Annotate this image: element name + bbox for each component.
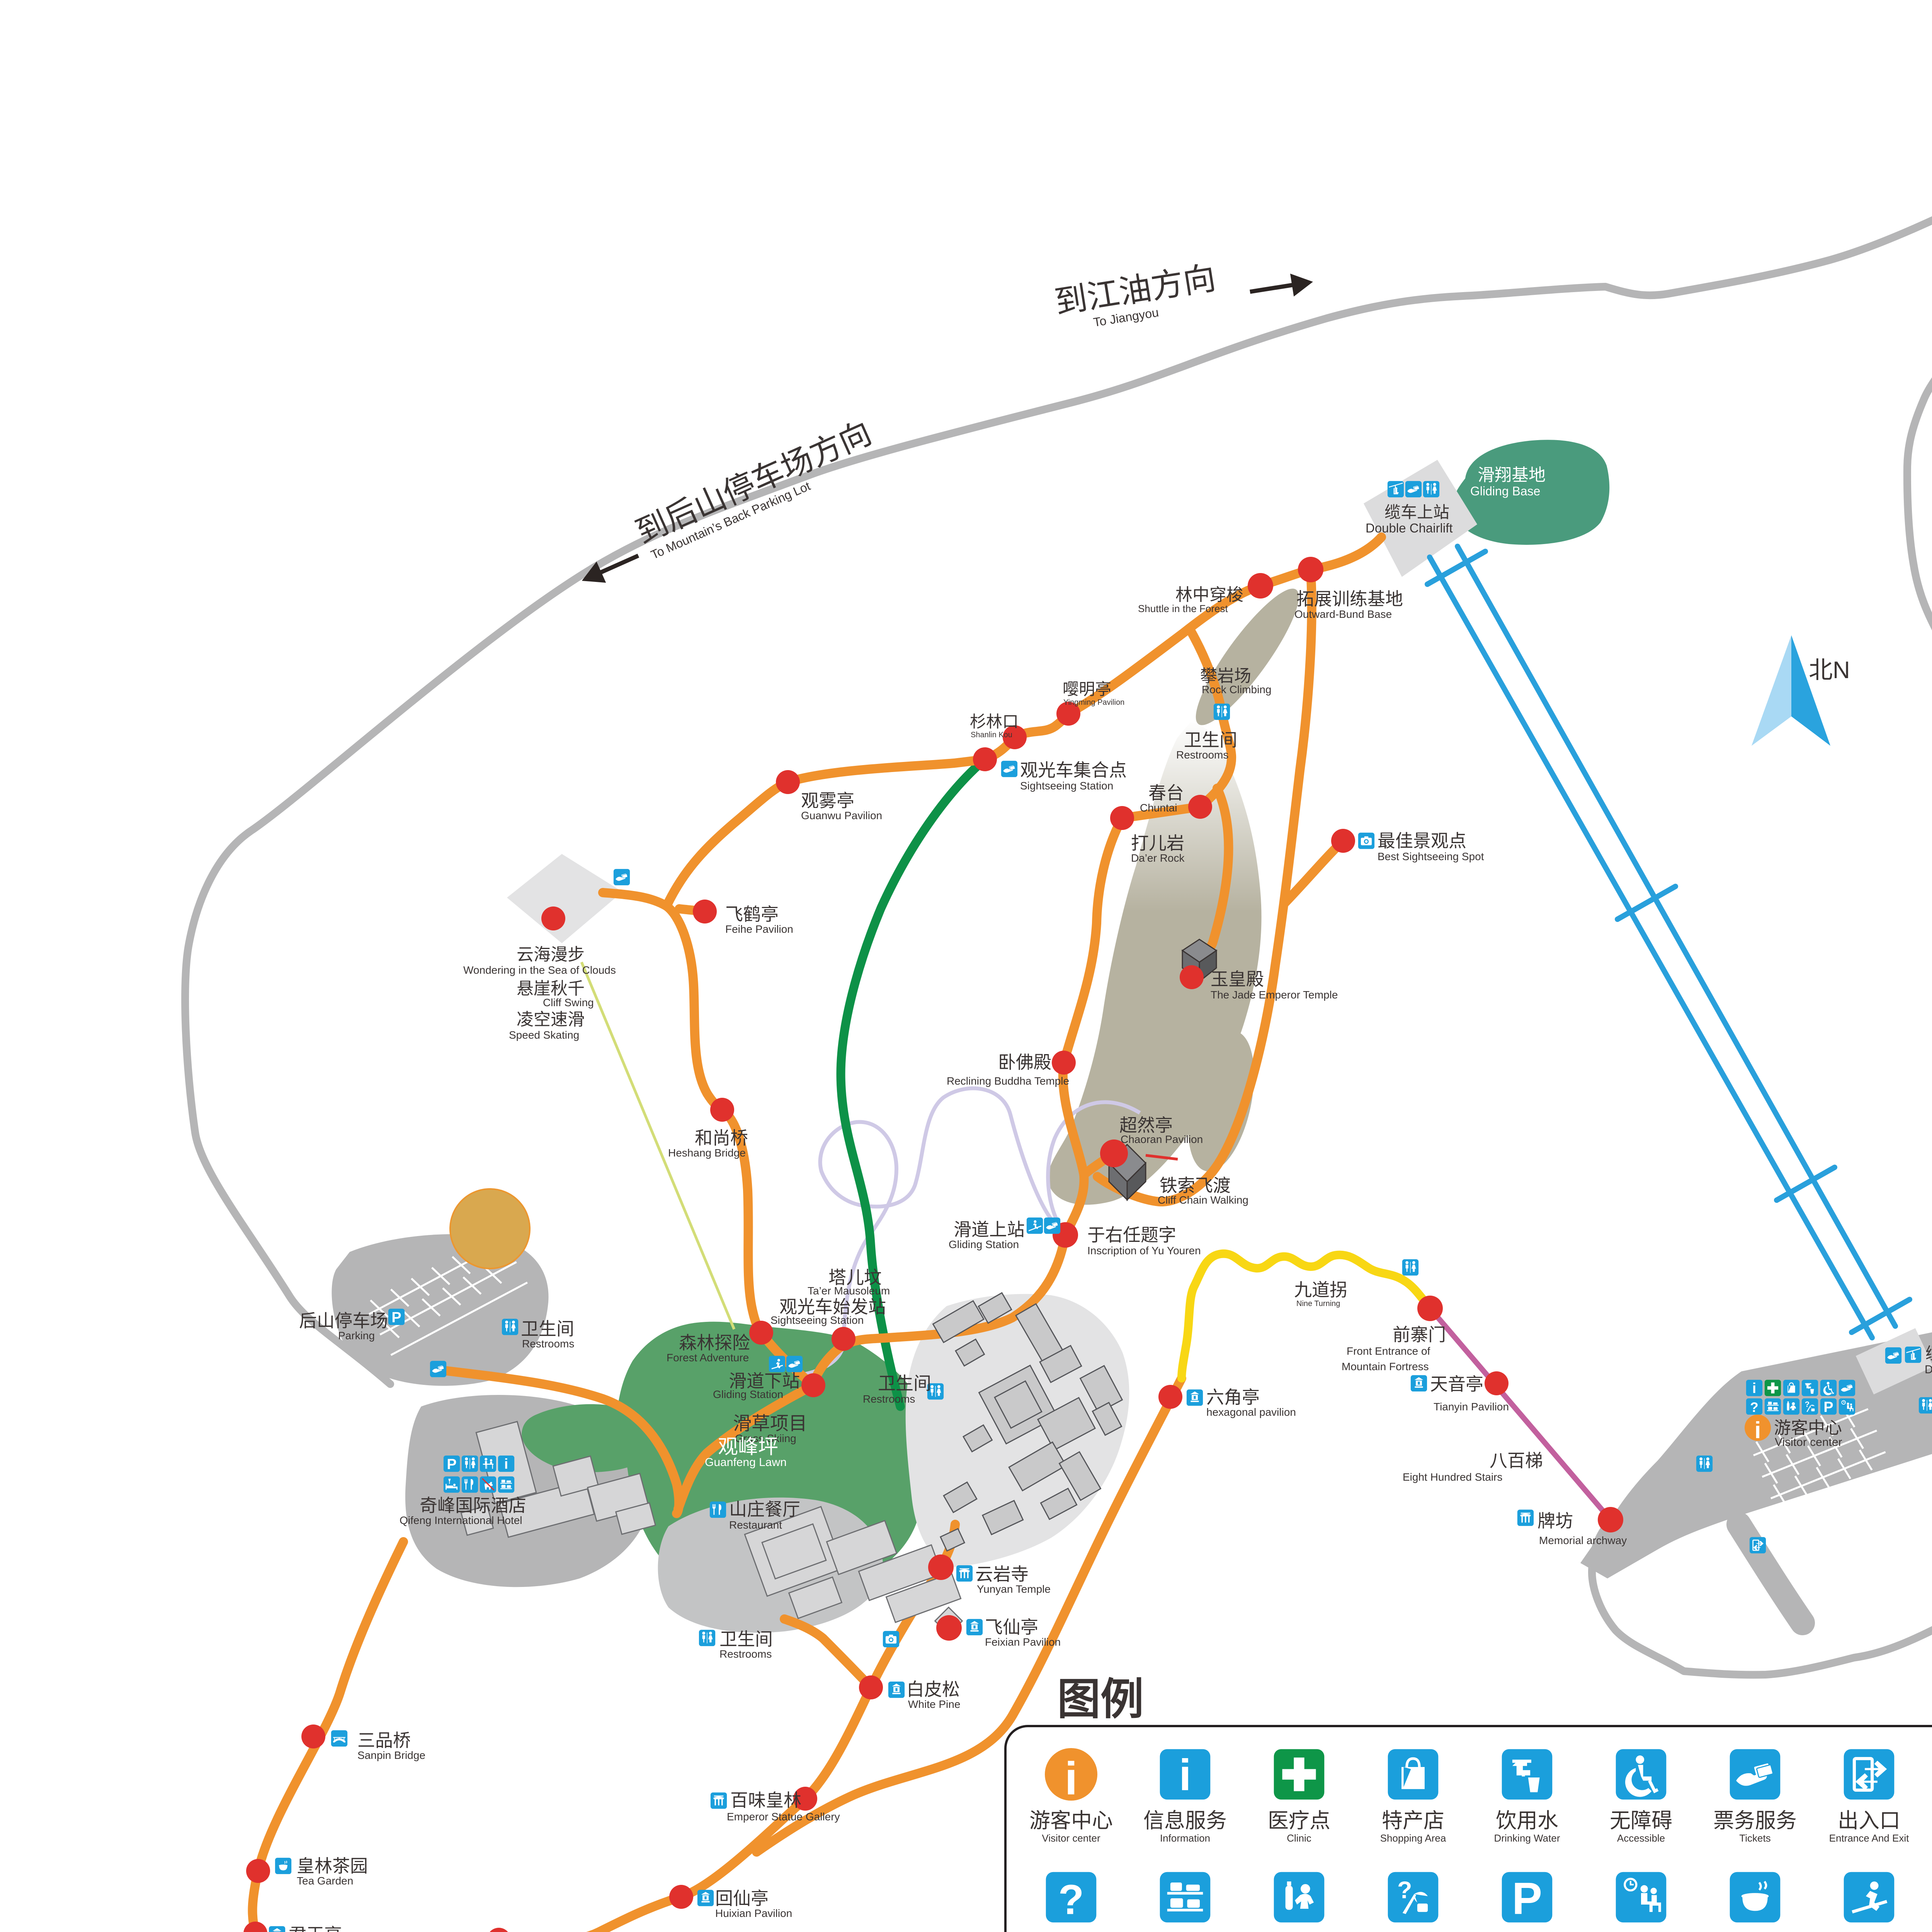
svg-text:Emperor Statue Gallery: Emperor Statue Gallery [727,1811,840,1823]
svg-text:Restrooms: Restrooms [863,1393,915,1405]
svg-text:杉林口: 杉林口 [970,713,1019,731]
svg-text:Guanfeng Lawn: Guanfeng Lawn [705,1456,787,1469]
svg-text:卫生间: 卫生间 [1184,730,1237,750]
svg-text:Yunyan Temple: Yunyan Temple [977,1583,1051,1595]
svg-text:Qifeng International Hotel: Qifeng International Hotel [400,1514,522,1526]
svg-text:Forest Adventure: Forest Adventure [667,1352,749,1364]
svg-text:Eight Hundred Stairs: Eight Hundred Stairs [1403,1471,1502,1483]
svg-text:春台: 春台 [1148,783,1184,803]
svg-text:Yingming Pavilion: Yingming Pavilion [1063,698,1124,707]
svg-text:九道拐: 九道拐 [1294,1280,1347,1300]
svg-text:天音亭: 天音亭 [1430,1374,1483,1394]
svg-text:超然亭: 超然亭 [1119,1115,1173,1135]
svg-text:前寨门: 前寨门 [1393,1325,1446,1345]
svg-text:票务服务: 票务服务 [1713,1809,1797,1832]
svg-text:卧佛殿: 卧佛殿 [998,1052,1051,1072]
svg-text:Memorial archway: Memorial archway [1539,1534,1627,1546]
svg-text:凌空速滑: 凌空速滑 [517,1010,585,1029]
svg-text:Best Sightseeing Spot: Best Sightseeing Spot [1378,850,1484,862]
svg-text:皇林茶园: 皇林茶园 [297,1856,368,1876]
svg-text:游客中心: 游客中心 [1774,1418,1842,1437]
svg-text:Shopping Area: Shopping Area [1380,1832,1446,1844]
svg-text:Visitor center: Visitor center [1042,1832,1100,1844]
svg-text:卫生间: 卫生间 [719,1629,773,1649]
svg-text:飞鹤亭: 飞鹤亭 [725,904,779,924]
svg-text:Nine Turning: Nine Turning [1296,1299,1340,1308]
svg-text:hexagonal pavilion: hexagonal pavilion [1206,1406,1296,1418]
svg-text:图例: 图例 [1057,1675,1144,1723]
svg-text:Ta’er Mausoleum: Ta’er Mausoleum [808,1285,890,1297]
svg-text:Front Entrance of: Front Entrance of [1347,1345,1430,1357]
svg-text:Gliding Base: Gliding Base [1470,484,1540,498]
svg-text:卫生间: 卫生间 [878,1373,931,1393]
svg-text:Restrooms: Restrooms [522,1338,574,1350]
svg-text:Accessible: Accessible [1617,1832,1665,1844]
svg-text:白皮松: 白皮松 [906,1679,960,1699]
svg-text:Restaurant: Restaurant [729,1519,782,1531]
svg-text:Double Chairlift: Double Chairlift [1366,521,1453,535]
svg-text:拓展训练基地: 拓展训练基地 [1296,589,1403,609]
svg-text:Gliding Station: Gliding Station [713,1388,783,1400]
svg-text:Sightseeing Station: Sightseeing Station [770,1314,864,1326]
svg-text:饮用水: 饮用水 [1496,1809,1558,1832]
svg-text:医疗点: 医疗点 [1268,1809,1330,1832]
svg-text:Information: Information [1160,1832,1210,1844]
svg-text:玉皇殿: 玉皇殿 [1211,969,1264,989]
svg-text:Sanpin Bridge: Sanpin Bridge [357,1749,425,1761]
svg-text:嘤明亭: 嘤明亭 [1063,680,1111,698]
svg-text:i: i [1755,1417,1761,1443]
svg-text:Feihe Pavilion: Feihe Pavilion [725,923,793,935]
svg-text:缆车上站: 缆车上站 [1384,503,1449,521]
svg-text:缆车下站: 缆车下站 [1925,1344,1932,1362]
svg-text:The Jade Emperor Temple: The Jade Emperor Temple [1211,989,1338,1001]
svg-text:Guanwu Pavilion: Guanwu Pavilion [801,810,882,821]
svg-text:Gliding Station: Gliding Station [949,1238,1019,1250]
svg-text:攀岩场: 攀岩场 [1200,667,1251,685]
svg-text:飞仙亭: 飞仙亭 [985,1617,1038,1637]
svg-text:森林探险: 森林探险 [679,1333,750,1353]
svg-text:Da’er Rock: Da’er Rock [1131,852,1185,864]
svg-text:特产店: 特产店 [1382,1809,1444,1832]
svg-text:林中穿梭: 林中穿梭 [1175,585,1243,604]
svg-text:Cliff Chain Walking: Cliff Chain Walking [1158,1194,1248,1206]
svg-text:Inscription of Yu Youren: Inscription of Yu Youren [1087,1245,1201,1257]
svg-text:滑道上站: 滑道上站 [954,1219,1025,1240]
svg-text:Feixian Pavilion: Feixian Pavilion [985,1636,1061,1648]
svg-text:Chuntai: Chuntai [1140,802,1177,814]
svg-text:Tianyin Pavilion: Tianyin Pavilion [1434,1401,1509,1413]
svg-text:Shuttle in the Forest: Shuttle in the Forest [1138,603,1228,614]
svg-text:Restrooms: Restrooms [719,1648,772,1660]
svg-text:北N: 北N [1809,657,1850,684]
svg-text:于右任题字: 于右任题字 [1087,1225,1176,1245]
svg-text:悬崖秋千: 悬崖秋千 [517,979,585,998]
svg-text:Tea Garden: Tea Garden [297,1875,353,1887]
svg-text:云海漫步: 云海漫步 [517,945,585,964]
svg-text:和尚桥: 和尚桥 [695,1128,748,1148]
svg-text:后山停车场: 后山停车场 [299,1311,388,1331]
svg-text:观峰坪: 观峰坪 [718,1436,778,1458]
svg-text:Restrooms: Restrooms [1176,749,1228,761]
svg-text:滑翔基地: 滑翔基地 [1478,466,1546,485]
svg-text:滑草项目: 滑草项目 [733,1413,807,1434]
svg-text:i: i [1065,1753,1077,1804]
svg-text:Visitor center: Visitor center [1775,1436,1842,1449]
svg-text:信息服务: 信息服务 [1143,1809,1227,1832]
svg-text:Clinic: Clinic [1287,1832,1311,1844]
svg-text:Shanlin Kou: Shanlin Kou [971,731,1012,739]
svg-text:Cliff Swing: Cliff Swing [543,997,594,1009]
svg-text:三品桥: 三品桥 [357,1730,411,1750]
svg-text:云岩寺: 云岩寺 [975,1564,1029,1584]
svg-text:Drinking Water: Drinking Water [1494,1832,1560,1844]
svg-text:观雾亭: 观雾亭 [801,791,854,811]
svg-text:卫生间: 卫生间 [521,1319,574,1339]
svg-text:Sightseeing Station: Sightseeing Station [1020,780,1113,792]
svg-text:山庄餐厅: 山庄餐厅 [729,1499,800,1519]
svg-text:打儿岩: 打儿岩 [1131,833,1184,853]
svg-text:六角亭: 六角亭 [1206,1387,1260,1407]
svg-text:Heshang Bridge: Heshang Bridge [668,1147,746,1159]
svg-text:出入口: 出入口 [1838,1809,1900,1832]
svg-text:奇峰国际酒店: 奇峰国际酒店 [420,1495,526,1515]
svg-text:Parking: Parking [338,1330,375,1342]
svg-text:牌坊: 牌坊 [1537,1511,1573,1531]
svg-text:Chaoran Pavilion: Chaoran Pavilion [1121,1133,1203,1145]
svg-text:回仙亭: 回仙亭 [715,1888,769,1908]
svg-text:Huixian Pavilion: Huixian Pavilion [715,1907,792,1919]
svg-text:无障碍: 无障碍 [1610,1809,1672,1832]
svg-text:White Pine: White Pine [908,1698,960,1710]
svg-text:Tickets: Tickets [1739,1832,1770,1844]
svg-text:游客中心: 游客中心 [1029,1809,1113,1832]
svg-text:Entrance And Exit: Entrance And Exit [1829,1832,1909,1844]
svg-text:铁索飞渡: 铁索飞渡 [1160,1175,1231,1196]
svg-text:Mountain Fortress: Mountain Fortress [1342,1361,1429,1372]
svg-text:Rock Climbing: Rock Climbing [1202,684,1272,696]
svg-text:Reclining Buddha Temple: Reclining Buddha Temple [947,1075,1069,1087]
svg-text:最佳景观点: 最佳景观点 [1378,831,1466,851]
svg-text:Outward-Bund Base: Outward-Bund Base [1294,608,1392,620]
svg-text:八百梯: 八百梯 [1490,1451,1543,1471]
svg-text:Double Chairlift: Double Chairlift [1925,1363,1932,1376]
svg-text:百味皇林: 百味皇林 [730,1790,801,1810]
svg-text:观光车集合点: 观光车集合点 [1020,760,1127,780]
svg-text:Wondering in the Sea of Clouds: Wondering in the Sea of Clouds [463,964,616,976]
svg-text:Speed Skating: Speed Skating [509,1029,579,1041]
svg-text:君王亭: 君王亭 [289,1925,342,1932]
